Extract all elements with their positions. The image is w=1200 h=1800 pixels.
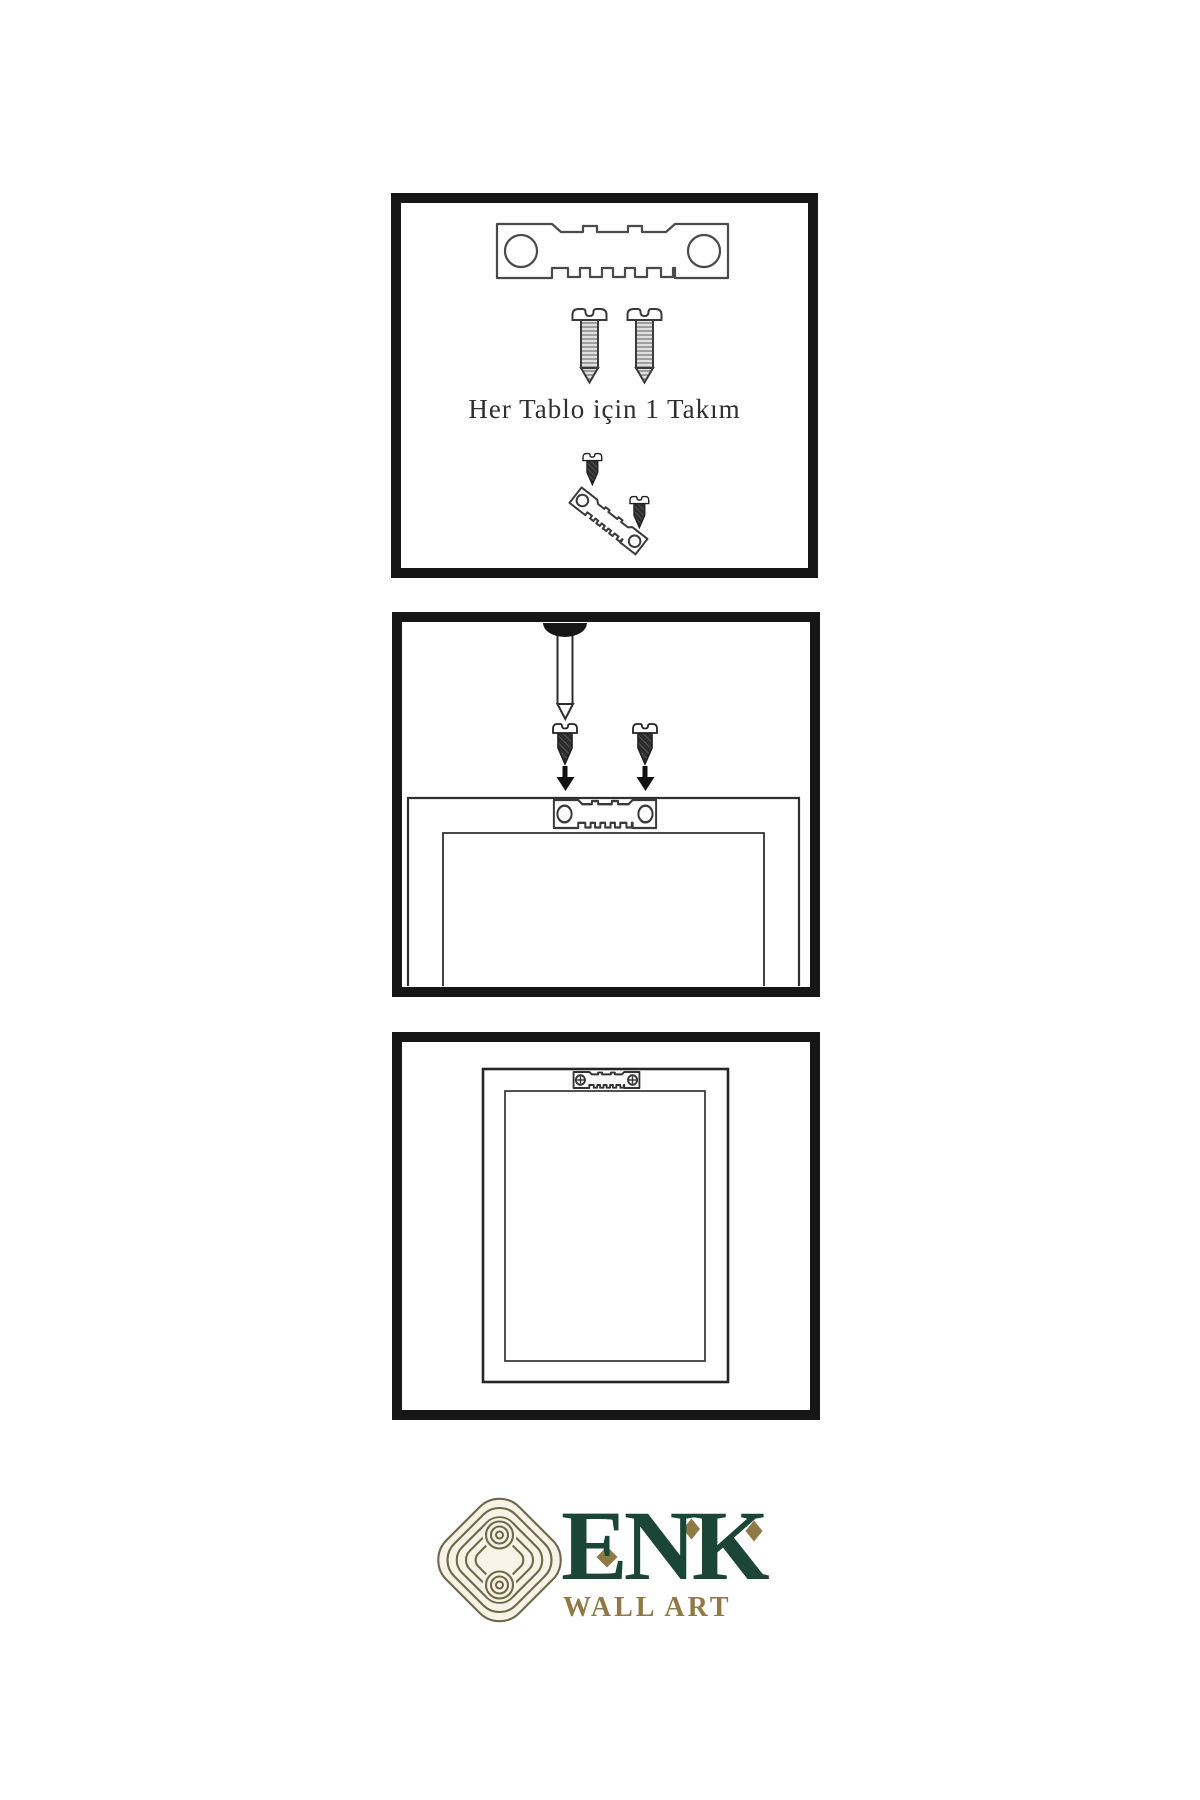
knot-weave-bottom (483, 1568, 517, 1602)
brand-subtitle: WALL ART (563, 1594, 763, 1622)
screw-icon (628, 309, 662, 383)
wall-nail-icon (543, 623, 587, 719)
screw-dark-icon (553, 724, 577, 764)
screw-dark-icon (630, 497, 649, 528)
frame-back-icon (408, 798, 799, 986)
arrow-down-icon (637, 766, 655, 791)
knot-weave-top (483, 1518, 517, 1552)
hanging-frame-icon (483, 1069, 728, 1382)
brand-name: ENK (561, 1496, 791, 1596)
screw-dark-icon (583, 454, 602, 485)
brand-knot-logo (427, 1487, 573, 1633)
screw-dark-icon (633, 724, 657, 764)
kit-caption: Her Tablo için 1 Takım (402, 394, 807, 425)
sawtooth-hanger-icon (497, 224, 728, 278)
arrow-down-icon (557, 766, 575, 791)
screw-icon (573, 309, 607, 383)
instruction-sheet: Her Tablo için 1 Takım ENK WALL ART (0, 0, 1200, 1800)
sawtooth-hanger-icon (554, 800, 656, 828)
